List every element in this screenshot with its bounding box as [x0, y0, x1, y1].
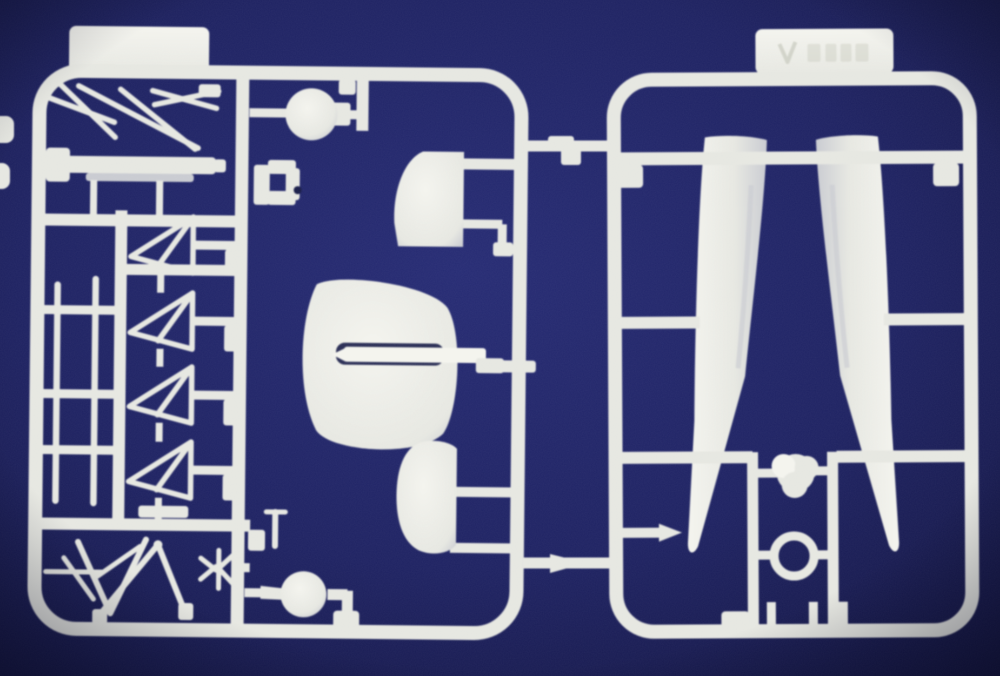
- vignette-overlay: [0, 0, 1000, 676]
- sprue-photo: [0, 0, 1000, 676]
- photo-stage: [0, 0, 1000, 676]
